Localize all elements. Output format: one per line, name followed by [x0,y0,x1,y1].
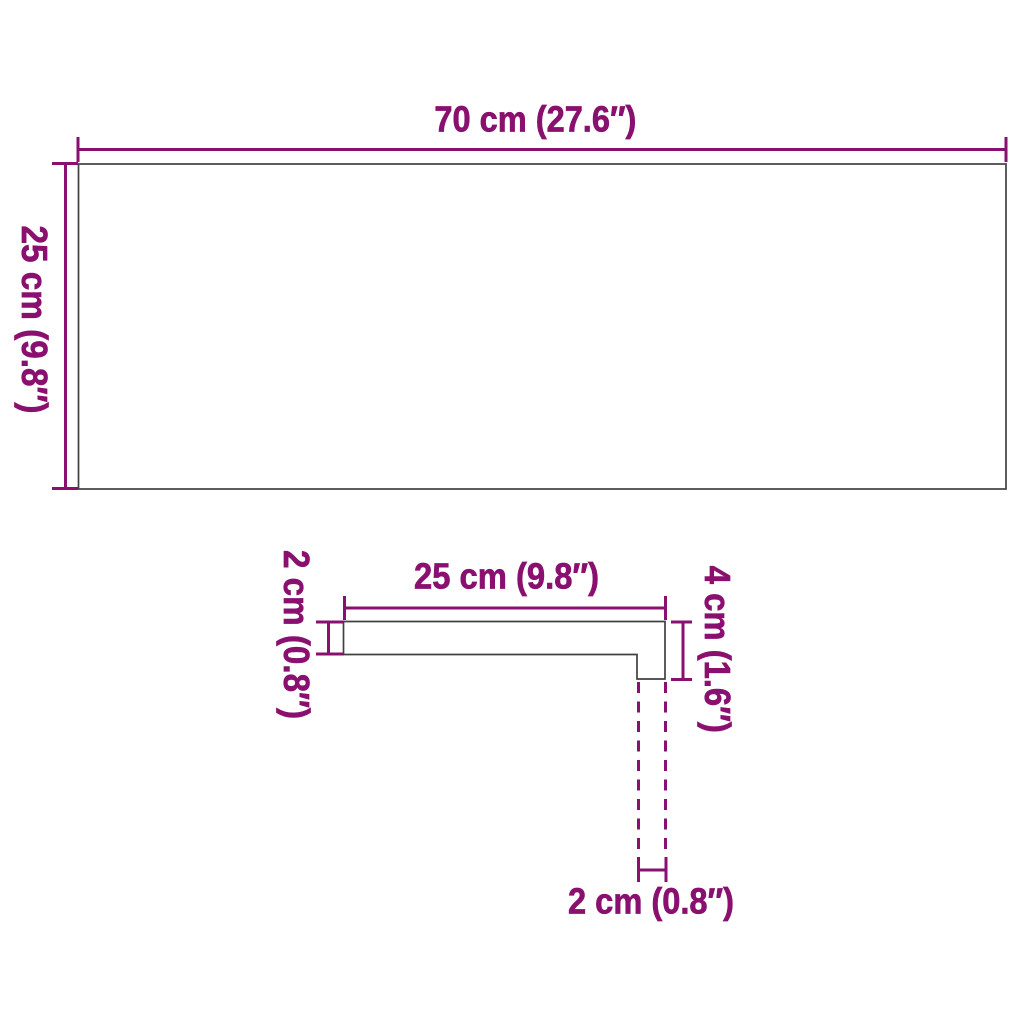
svg-text:4 cm (1.6″): 4 cm (1.6″) [697,566,738,733]
svg-text:2 cm (0.8″): 2 cm (0.8″) [276,550,317,719]
svg-text:2 cm (0.8″): 2 cm (0.8″) [568,880,734,921]
svg-text:70 cm (27.6″): 70 cm (27.6″) [434,99,636,140]
svg-text:25 cm (9.8″): 25 cm (9.8″) [414,555,599,596]
svg-text:25 cm (9.8″): 25 cm (9.8″) [14,226,55,414]
